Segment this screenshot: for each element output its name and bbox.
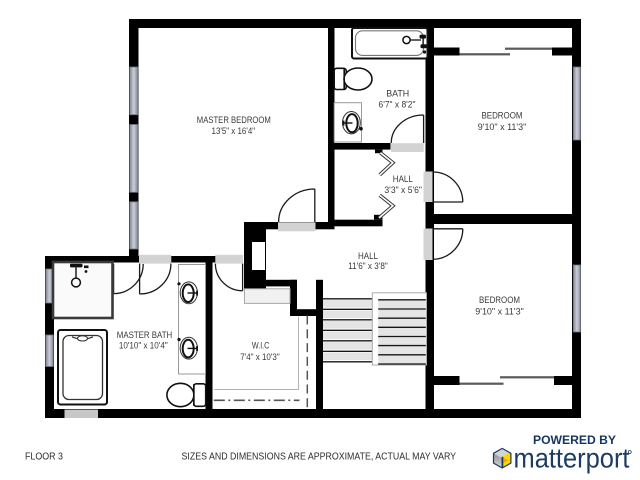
svg-text:9'10" x 11'3": 9'10" x 11'3" [478,122,527,132]
svg-text:BEDROOM: BEDROOM [482,110,523,121]
svg-text:HALL: HALL [358,250,378,261]
svg-text:W.I.C: W.I.C [252,339,270,350]
svg-text:MASTER BATH: MASTER BATH [117,329,173,340]
svg-text:9'10" x 11'3": 9'10" x 11'3" [475,306,524,316]
svg-text:FLOOR 3: FLOOR 3 [25,452,63,463]
svg-text:HALL: HALL [393,173,413,184]
svg-text:BEDROOM: BEDROOM [479,294,520,305]
svg-text:MASTER BEDROOM: MASTER BEDROOM [197,114,271,125]
svg-text:11'6" x 3'8": 11'6" x 3'8" [348,261,388,271]
svg-text:3'3" x 5'6": 3'3" x 5'6" [384,185,422,195]
svg-text:7'4" x 10'3": 7'4" x 10'3" [240,352,279,362]
svg-text:matterport: matterport [514,442,630,473]
svg-text:13'5" x 16'4": 13'5" x 16'4" [212,126,256,136]
svg-text:SIZES AND DIMENSIONS ARE APPRO: SIZES AND DIMENSIONS ARE APPROXIMATE, AC… [182,452,457,463]
svg-text:6'7" x 8'2": 6'7" x 8'2" [379,100,416,110]
svg-text:BATH: BATH [386,88,409,99]
svg-text:10'10" x 10'4": 10'10" x 10'4" [119,340,168,350]
